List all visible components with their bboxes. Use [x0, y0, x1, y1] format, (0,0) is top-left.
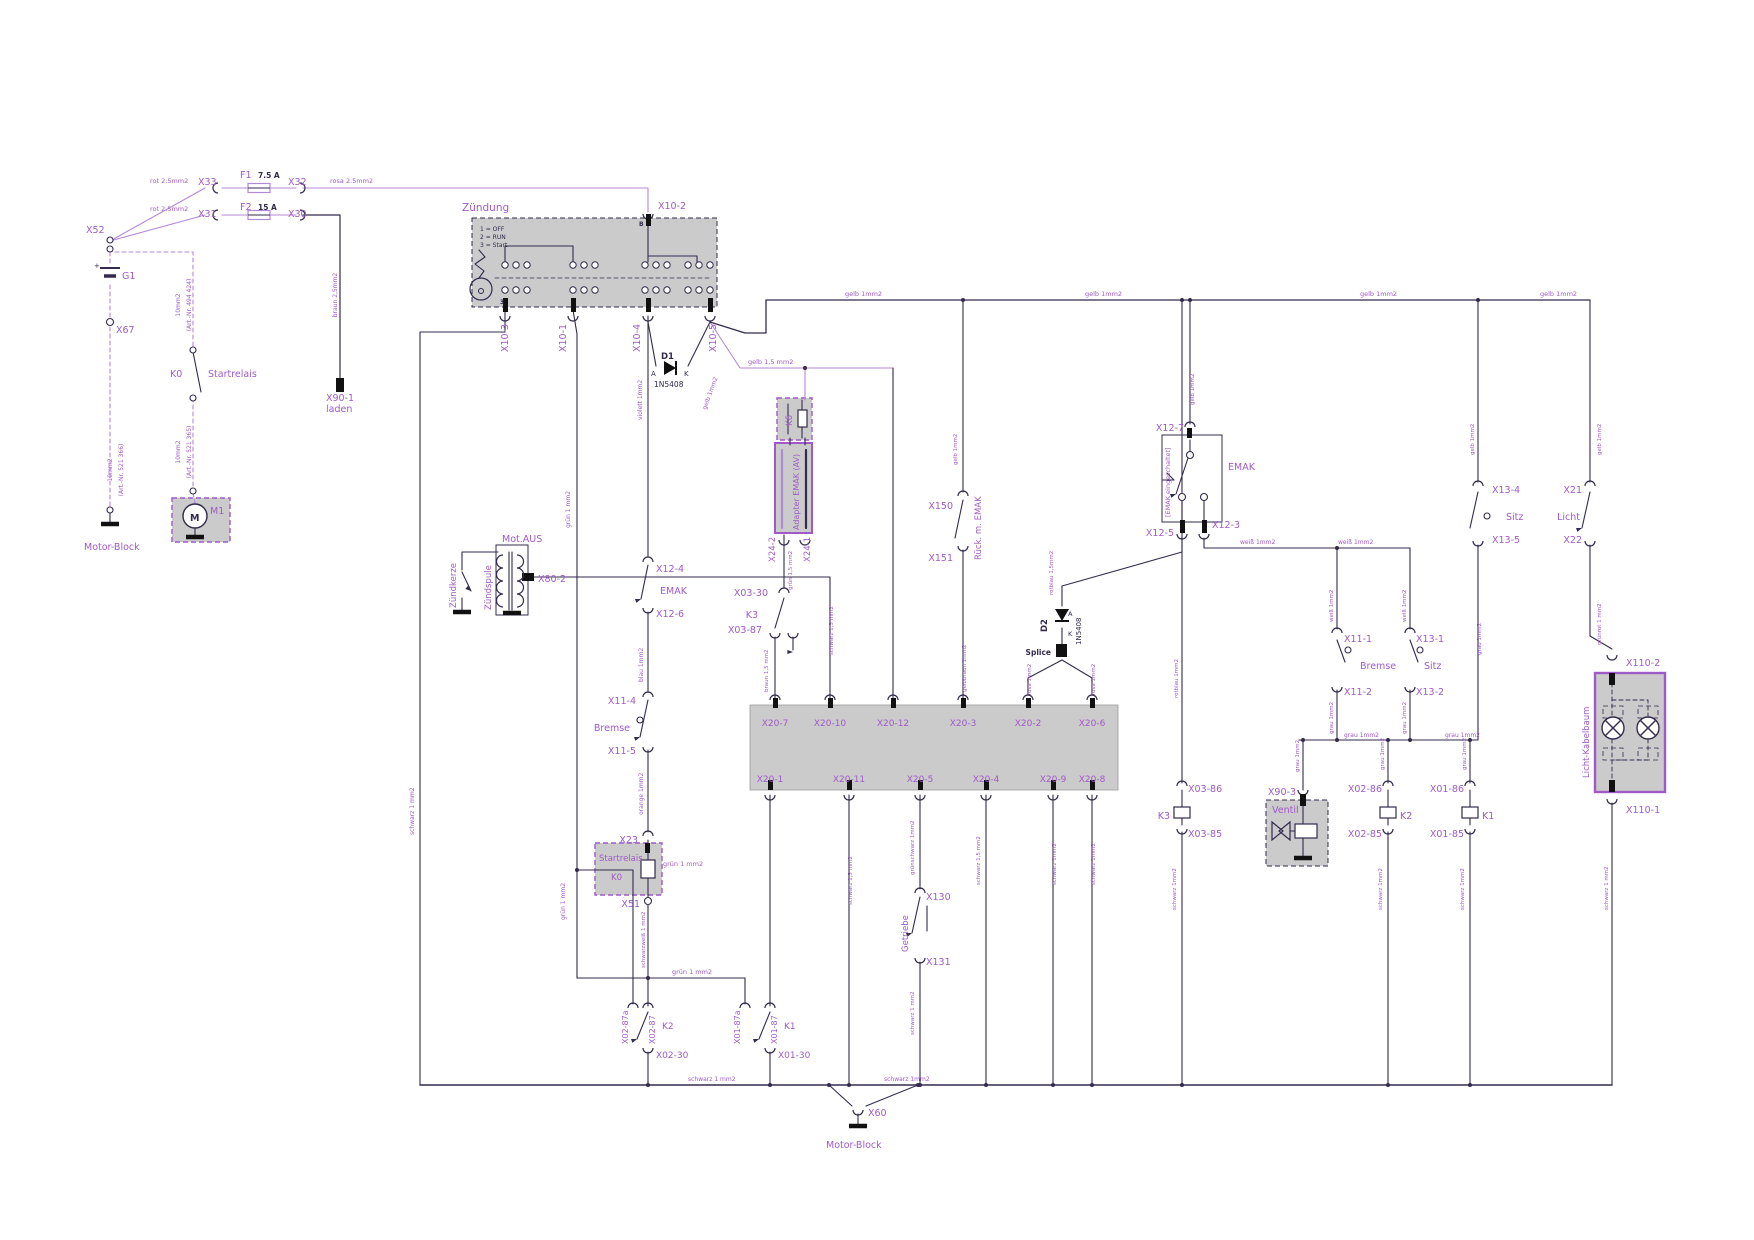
contact-circle-icon	[707, 262, 713, 268]
terminal-pin	[1090, 698, 1095, 708]
label-weiß-1mm2: weiß 1mm2	[1240, 539, 1275, 546]
label-a: A	[651, 370, 656, 378]
junction-dot	[1180, 298, 1184, 302]
wire	[641, 565, 648, 599]
label-x02-87: X02-87	[648, 1015, 657, 1044]
label-x20-4: X20-4	[973, 775, 1000, 785]
label-x24-2: X24-2	[768, 537, 778, 562]
label-x20-2: X20-2	[1015, 719, 1042, 729]
contact-circle-icon	[642, 287, 648, 293]
label-x31: X31	[198, 209, 217, 220]
label-x13-2: X13-2	[1416, 687, 1444, 698]
contact-circle-icon	[653, 287, 659, 293]
switch-arrow-icon	[635, 599, 641, 603]
junction-dot	[827, 1083, 831, 1087]
contact-circle-icon	[696, 262, 702, 268]
label-k2: K2	[662, 1022, 674, 1032]
label-gelb-1mm2: gelb 1mm2	[953, 434, 959, 465]
terminal-pin	[1187, 428, 1192, 438]
label-rot-2-5mm2: rot 2.5mm2	[150, 177, 188, 185]
label-braun-2-5mm2: braun 2,5mm2	[332, 273, 339, 318]
label-grünrot-1-mm2: grünrot 1 mm2	[1597, 603, 1603, 645]
label-splice: Splice	[1026, 648, 1051, 657]
wire	[710, 300, 1590, 333]
label-startrelais: Startrelais	[208, 369, 257, 380]
terminal-pin	[645, 843, 650, 853]
schematic-canvas: rot 2.5mm2X33F17.5 AX32rosa 2.5mm2rot 2.…	[0, 0, 1754, 1240]
junction-dot	[1386, 738, 1390, 742]
wire	[775, 598, 784, 628]
label-schwarz-1-5-mm2: schwarz 1,5 mm2	[976, 836, 982, 885]
contact-circle-icon	[664, 262, 670, 268]
switch-arrow-icon	[787, 650, 793, 654]
contact-circle-icon	[664, 287, 670, 293]
label-x20-9: X20-9	[1040, 775, 1067, 785]
label-x11-5: X11-5	[608, 746, 636, 757]
label-blau-1mm2: blau 1mm2	[638, 648, 645, 682]
terminal-pin	[828, 698, 833, 708]
label-grau-1mm2: grau 1mm2	[1402, 702, 1408, 734]
junction-dot	[847, 1083, 851, 1087]
label-x60: X60	[868, 1108, 887, 1119]
label-gelb-1mm2: gelb 1mm2	[1470, 424, 1476, 455]
label-schwarz-1-mm2: schwarz 1 mm2	[1604, 866, 1610, 910]
label-x12-4: X12-4	[656, 564, 684, 575]
label-x20-3: X20-3	[950, 719, 977, 729]
connector-arc-icon	[1607, 655, 1617, 660]
switch-arrow-icon	[634, 737, 640, 741]
label-weiß-1mm2: weiß 1mm2	[1329, 590, 1335, 622]
label-2-run: 2 = RUN	[480, 234, 506, 241]
label-schwarz-1mm2: schwarz 1mm2	[884, 1076, 930, 1083]
label-x110-1: X110-1	[1626, 805, 1660, 816]
junction-dot	[768, 1083, 772, 1087]
wire	[193, 352, 201, 392]
terminal-pin	[1609, 673, 1615, 685]
label-grau-1mm2: grau 1mm2	[1477, 623, 1483, 655]
label-1n5408: 1N5408	[654, 380, 684, 389]
label-x110-2: X110-2	[1626, 658, 1660, 669]
wire	[110, 215, 205, 241]
node-circle	[107, 507, 113, 513]
junction-dot	[646, 1083, 650, 1087]
label-schwarz-1-5-mm2: schwarz 1,5 mm2	[829, 606, 835, 655]
label-x01-87a: X01-87a	[733, 1010, 742, 1044]
label-schwarz-1-5-mm2: schwarz 1,5 mm2	[848, 856, 854, 905]
connector-arc-icon	[643, 557, 653, 562]
label-x02-85: X02-85	[1348, 829, 1382, 840]
relay-coil-icon	[1462, 807, 1478, 818]
label-schwarz-1mm2: schwarz 1mm2	[1460, 868, 1466, 910]
label-x20-7: X20-7	[762, 719, 789, 729]
label-f2: F2	[240, 202, 252, 213]
label-grün-1-mm2: grün 1 mm2	[560, 883, 567, 920]
label-x20-11: X20-11	[833, 775, 865, 785]
label-x151: X151	[928, 553, 953, 564]
label-x10-4: X10-4	[632, 324, 643, 352]
junction-dot	[1301, 738, 1305, 742]
terminal-pin	[336, 378, 344, 392]
wire	[648, 322, 656, 366]
junction-dot	[1051, 1083, 1055, 1087]
contact-circle-icon	[524, 287, 530, 293]
junction-dot	[1386, 1083, 1390, 1087]
label-x01-86: X01-86	[1430, 784, 1464, 795]
label-gelb-1mm2: gelb 1mm2	[701, 376, 719, 411]
node-circle	[645, 898, 652, 905]
wire	[1470, 492, 1478, 528]
label-art-nr-494-424: (Art.-Nr. 494 424)	[186, 279, 193, 332]
node-circle	[637, 717, 643, 723]
label-x01-87: X01-87	[770, 1015, 779, 1044]
label-rotblau-1-5mm2: rotblau 1,5mm2	[1049, 551, 1055, 595]
label-b: B	[639, 221, 644, 228]
label-violett-1mm2: violett 1mm2	[637, 380, 644, 420]
label-x13-5: X13-5	[1492, 535, 1520, 546]
label-x02-86: X02-86	[1348, 784, 1382, 795]
label-x52: X52	[86, 225, 105, 236]
wire	[110, 188, 205, 241]
label-x90-1: X90-1	[326, 393, 354, 404]
contact-circle-icon	[685, 287, 691, 293]
label-gelb-1mm2: gelb 1mm2	[1360, 290, 1397, 298]
label-x03-86: X03-86	[1188, 784, 1222, 795]
label-k: K	[1068, 630, 1073, 638]
label-m1: M1	[210, 506, 224, 517]
label-rosa-2-5mm2: rosa 2.5mm2	[330, 177, 373, 185]
wire	[912, 897, 920, 933]
contact-circle-icon	[502, 262, 508, 268]
wire	[829, 1085, 852, 1106]
node-circle	[190, 395, 196, 401]
label-mot-aus: Mot.AUS	[502, 534, 542, 545]
connector-arc-icon	[643, 692, 653, 697]
label-orange-1mm2: orange 1mm2	[638, 772, 645, 815]
label-text: +	[94, 262, 100, 270]
label-motor-block: Motor-Block	[826, 1140, 882, 1151]
node-circle	[1201, 494, 1208, 501]
label-emak-eingeschaltet: [EMAK eingeschaltet]	[1164, 447, 1172, 517]
label-x24-1: X24-1	[803, 537, 813, 562]
contact-circle-icon	[592, 262, 598, 268]
terminal-pin	[708, 298, 713, 312]
node-circle	[1417, 647, 1423, 653]
label-adapter-emak-av: Adapter EMAK (AV)	[792, 454, 801, 530]
label-emak: EMAK	[1228, 462, 1256, 473]
label-braun-1-5-mm2: braun 1,5 mm2	[764, 649, 770, 692]
label-gelb-1mm2: gelb 1mm2	[1597, 424, 1603, 455]
label-sitz: Sitz	[1424, 661, 1441, 672]
label-x01-85: X01-85	[1430, 829, 1464, 840]
label-a: A	[1068, 610, 1073, 618]
junction-dot	[1476, 298, 1480, 302]
diode-icon	[664, 361, 676, 375]
terminal-pin	[1056, 644, 1067, 657]
wire	[710, 322, 893, 368]
label-schwarz-1mm2: schwarz 1mm2	[1172, 868, 1178, 910]
contact-circle-icon	[524, 262, 530, 268]
terminal-pin	[961, 698, 966, 708]
label-x20-10: X20-10	[814, 719, 847, 729]
junction-dot	[1188, 298, 1192, 302]
wire	[637, 1012, 648, 1039]
label-x131: X131	[926, 957, 951, 968]
label-d1: D1	[661, 352, 674, 362]
label-gelb-1mm2: gelb 1mm2	[1190, 374, 1196, 405]
label-zündspule: Zündspule	[484, 565, 494, 610]
contact-circle-icon	[642, 262, 648, 268]
label-x20-6: X20-6	[1079, 719, 1106, 729]
label-ventil: Ventil	[1272, 805, 1299, 816]
relay-coil-icon	[1174, 807, 1190, 818]
label-x150: X150	[928, 501, 953, 512]
contact-circle-icon	[581, 287, 587, 293]
switch-arrow-icon	[631, 1039, 637, 1043]
label-rück-m-emak: Rück. m. EMAK	[974, 496, 984, 560]
wire	[1204, 538, 1410, 548]
label-bremse: Bremse	[1360, 661, 1396, 672]
node-circle	[1187, 452, 1194, 459]
label-k0: K0	[170, 369, 182, 380]
label-x51: X51	[621, 899, 640, 910]
label-rot-2-5mm2: rot 2.5mm2	[150, 205, 188, 213]
label-m: M	[190, 513, 199, 524]
label-rosa-1mm2: rosa 1mm2	[1091, 664, 1097, 695]
label-3: 3	[500, 299, 504, 306]
label-x20-12: X20-12	[877, 719, 909, 729]
label-x13-1: X13-1	[1416, 634, 1444, 645]
label-15-a: 15 A	[258, 203, 277, 212]
label-art-nr-521-365: (Art.-Nr. 521 365)	[186, 426, 193, 479]
junction-dot	[575, 868, 579, 872]
terminal-pin	[1180, 520, 1185, 533]
label-grün-1-mm2: grün 1 mm2	[565, 491, 572, 528]
label-k0: K0	[611, 873, 622, 883]
contact-circle-icon	[685, 262, 691, 268]
contact-circle-icon	[570, 287, 576, 293]
label-grau-1mm2: grau 1mm2	[1462, 738, 1468, 770]
label-x03-87: X03-87	[728, 625, 762, 636]
wire	[1582, 492, 1590, 528]
switch-arrow-icon	[1576, 528, 1582, 532]
label-k3: K3	[1158, 811, 1170, 822]
node-circle	[190, 347, 196, 353]
wire	[866, 1085, 918, 1106]
terminal-pin	[571, 298, 576, 312]
relay-coil-icon	[798, 410, 807, 427]
label-10mm2: 10mm2	[107, 458, 114, 481]
junction-dot	[1335, 738, 1339, 742]
contact-circle-icon	[513, 262, 519, 268]
junction-dot	[1335, 546, 1339, 550]
label-7-5-a: 7.5 A	[258, 171, 280, 180]
label-x13-4: X13-4	[1492, 485, 1520, 496]
relay-coil-icon	[1295, 824, 1317, 838]
contact-circle-icon	[581, 262, 587, 268]
label-rotblau-1mm2: rotblau 1mm2	[1174, 659, 1180, 698]
label-weiß-1mm2: weiß 1mm2	[1402, 590, 1408, 622]
label-x11-1: X11-1	[1344, 634, 1372, 645]
wire	[1028, 660, 1062, 694]
label-x11-2: X11-2	[1344, 687, 1372, 698]
label-x20-1: X20-1	[757, 775, 784, 785]
junction-dot	[1408, 738, 1412, 742]
label-grau-1mm2: grau 1mm2	[1329, 702, 1335, 734]
connector-arc-icon	[568, 316, 578, 321]
label-x67: X67	[116, 325, 135, 336]
label-x03-85: X03-85	[1188, 829, 1222, 840]
label-x03-30: X03-30	[734, 588, 768, 599]
node-circle	[107, 237, 113, 243]
junction-dot	[803, 366, 807, 370]
label-x11-4: X11-4	[608, 696, 636, 707]
label-x20-8: X20-8	[1079, 775, 1106, 785]
junction-dot	[961, 298, 965, 302]
label-grau-1mm2: grau 1mm2	[1380, 738, 1386, 770]
label-x20-5: X20-5	[907, 775, 934, 785]
label-k2: K2	[1400, 811, 1412, 822]
terminal-pin	[1300, 794, 1306, 806]
label-schwarz-1mm2: schwarz 1mm2	[1091, 843, 1097, 885]
contact-circle-icon	[570, 262, 576, 268]
junction-dot	[1468, 1083, 1472, 1087]
label-x12-5: X12-5	[1146, 528, 1174, 539]
terminal-pin	[1202, 520, 1207, 533]
label-sitz: Sitz	[1506, 512, 1523, 523]
node-circle	[1179, 494, 1186, 501]
label-grün-1-mm2: grün 1 mm2	[663, 860, 703, 868]
label-x80-2: X80-2	[538, 574, 566, 585]
label-k1: K1	[784, 1022, 796, 1032]
terminal-pin	[1609, 780, 1615, 792]
label-schwarz-1-mm2: schwarz 1 mm2	[688, 1076, 736, 1083]
node-circle	[190, 488, 196, 494]
label-gelb-1mm2: gelb 1mm2	[1540, 290, 1577, 298]
label-10mm2: 10mm2	[175, 293, 182, 316]
connector-arc-icon	[705, 316, 715, 321]
label-k3: K3	[746, 610, 758, 621]
contact-circle-icon	[653, 262, 659, 268]
label-grau-1mm2: grau 1mm2	[1344, 732, 1379, 739]
wire	[573, 310, 577, 978]
terminal-pin	[646, 298, 651, 312]
wire	[688, 322, 710, 366]
label-x12-6: X12-6	[656, 609, 684, 620]
contact-circle-icon	[696, 287, 702, 293]
label-x01-30: X01-30	[778, 1051, 811, 1061]
terminal-pin	[646, 214, 651, 226]
diode-icon	[1055, 609, 1069, 621]
label-grün-1-5-mm2: grün 1,5 mm2	[788, 551, 794, 590]
label-schwarz-1-mm2: schwarz 1 mm2	[910, 991, 916, 1035]
label-x130: X130	[926, 892, 951, 903]
label-weiß-1mm2: weiß 1mm2	[1338, 539, 1373, 546]
label-zündung: Zündung	[462, 202, 509, 214]
label-d2: D2	[1040, 619, 1050, 632]
label-x02-87a: X02-87a	[621, 1010, 630, 1044]
label-gelbbraun-1mm2: gelbbraun 1mm2	[962, 645, 968, 692]
contact-circle-icon	[502, 287, 508, 293]
label-x22: X22	[1563, 535, 1582, 546]
node-circle	[107, 246, 113, 252]
label-licht-kabelbaum: Licht-Kabelbaum	[1582, 707, 1592, 778]
node-circle	[1484, 513, 1490, 519]
label-grau-1mm2: grau 1mm2	[1295, 740, 1301, 772]
terminal-pin	[1026, 698, 1031, 708]
label-x90-3: X90-3	[1268, 787, 1296, 798]
label-motor-block: Motor-Block	[84, 542, 140, 553]
label-1n5408: 1N5408	[1075, 617, 1083, 645]
wire	[420, 310, 505, 1085]
label-grünschwarz-1mm2: grünschwarz 1mm2	[910, 820, 916, 875]
wire	[577, 978, 745, 1004]
label-x23: X23	[619, 835, 638, 846]
label-gelb-1mm2: gelb 1mm2	[845, 290, 882, 298]
contact-circle-icon	[707, 287, 713, 293]
label-schwarz-1mm2: schwarz 1mm2	[1378, 868, 1384, 910]
label-x12-7: X12-7	[1156, 423, 1184, 434]
junction-dot	[918, 1083, 922, 1087]
label-x10-5: X10-5	[708, 324, 719, 352]
junction-dot	[646, 976, 650, 980]
wire	[955, 500, 963, 538]
label-gelb-1-5-mm2: gelb 1,5 mm2	[748, 358, 793, 366]
label-3-start: 3 = Start	[480, 242, 508, 249]
terminal-pin	[773, 698, 778, 708]
switch-arrow-icon	[753, 1039, 759, 1043]
label-g1: G1	[122, 271, 135, 282]
label-x02-30: X02-30	[656, 1051, 689, 1061]
label-x10-1: X10-1	[558, 324, 569, 352]
junction-dot	[984, 1083, 988, 1087]
label-x10-3: X10-3	[500, 324, 511, 352]
label-zündkerze: Zündkerze	[449, 563, 459, 608]
label-x32: X32	[288, 177, 307, 188]
label-emak: EMAK	[660, 586, 688, 597]
label-x10-2: X10-2	[658, 201, 686, 212]
label-getriebe: Getriebe	[901, 915, 911, 952]
relay-coil-icon	[641, 860, 655, 878]
label-k6: K6	[785, 415, 795, 426]
label-bremse: Bremse	[594, 723, 630, 734]
label-x21: X21	[1563, 485, 1582, 496]
wiring-diagram-page: rot 2.5mm2X33F17.5 AX32rosa 2.5mm2rot 2.…	[0, 0, 1754, 1240]
label-art-nr-521-366: (Art.-Nr. 521 366)	[118, 444, 125, 497]
label-10mm2: 10mm2	[175, 440, 182, 463]
label-gelb-1mm2: gelb 1mm2	[1085, 290, 1122, 298]
wire	[759, 1012, 770, 1039]
relay-coil-icon	[1380, 807, 1396, 818]
junction-dot	[1180, 1083, 1184, 1087]
label-k: K	[684, 370, 689, 378]
node-circle	[1345, 647, 1351, 653]
label-rosa-1mm2: rosa 1mm2	[1027, 664, 1033, 695]
label-x12-3: X12-3	[1212, 520, 1240, 531]
label-grün-1-mm2: grün 1 mm2	[672, 968, 712, 976]
contact-circle-icon	[592, 287, 598, 293]
label-schwarzweiß-1-mm2: schwarzweiß 1 mm2	[641, 912, 647, 968]
label-startrelais: Startrelais	[599, 854, 643, 864]
node-circle	[107, 319, 114, 326]
label-x30: X30	[288, 209, 307, 220]
wire	[1062, 538, 1182, 606]
label-licht: Licht	[1557, 512, 1580, 523]
contact-circle-icon	[513, 287, 519, 293]
label-schwarz-1mm2: schwarz 1mm2	[1052, 843, 1058, 885]
label-k1: K1	[1482, 811, 1494, 822]
label-f1: F1	[240, 170, 252, 181]
junction-dot	[1090, 1083, 1094, 1087]
